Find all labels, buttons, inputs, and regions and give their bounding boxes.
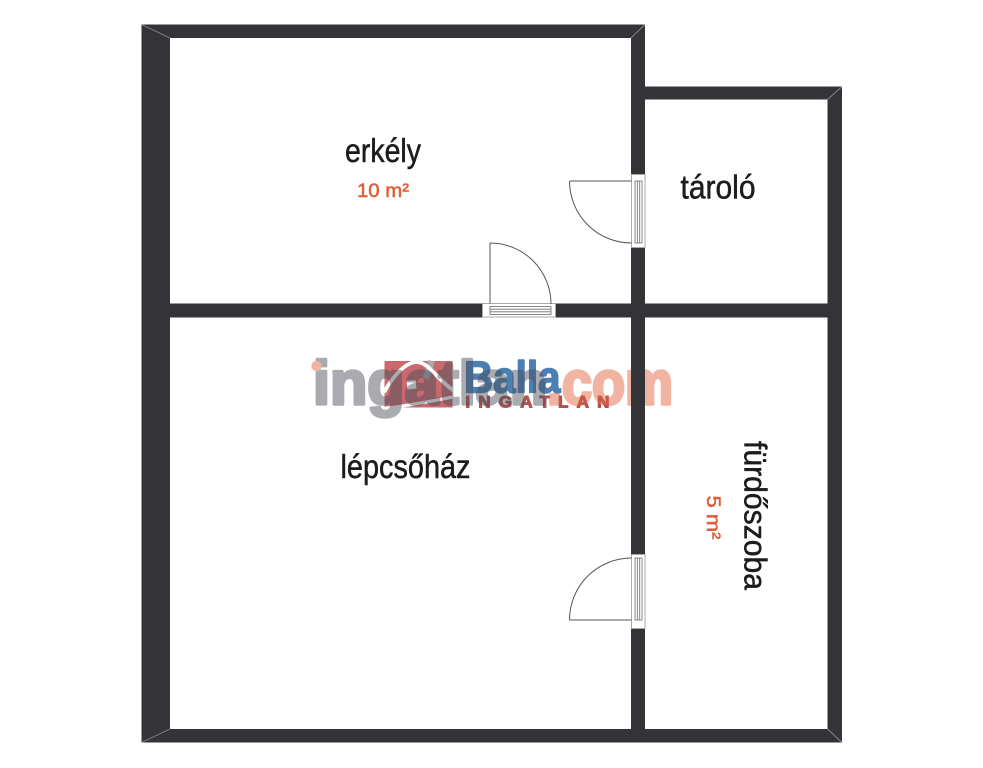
svg-text:.com: .com <box>547 349 673 418</box>
svg-text:tároló: tároló <box>681 169 756 206</box>
svg-text:erkély: erkély <box>345 132 421 169</box>
svg-text:fürdőszoba: fürdőszoba <box>738 441 774 590</box>
svg-text:ingatlan: ingatlan <box>313 349 547 418</box>
svg-text:10 m²: 10 m² <box>357 180 410 202</box>
svg-text:lépcsőház: lépcsőház <box>341 448 471 485</box>
svg-text:5 m²: 5 m² <box>702 496 724 541</box>
